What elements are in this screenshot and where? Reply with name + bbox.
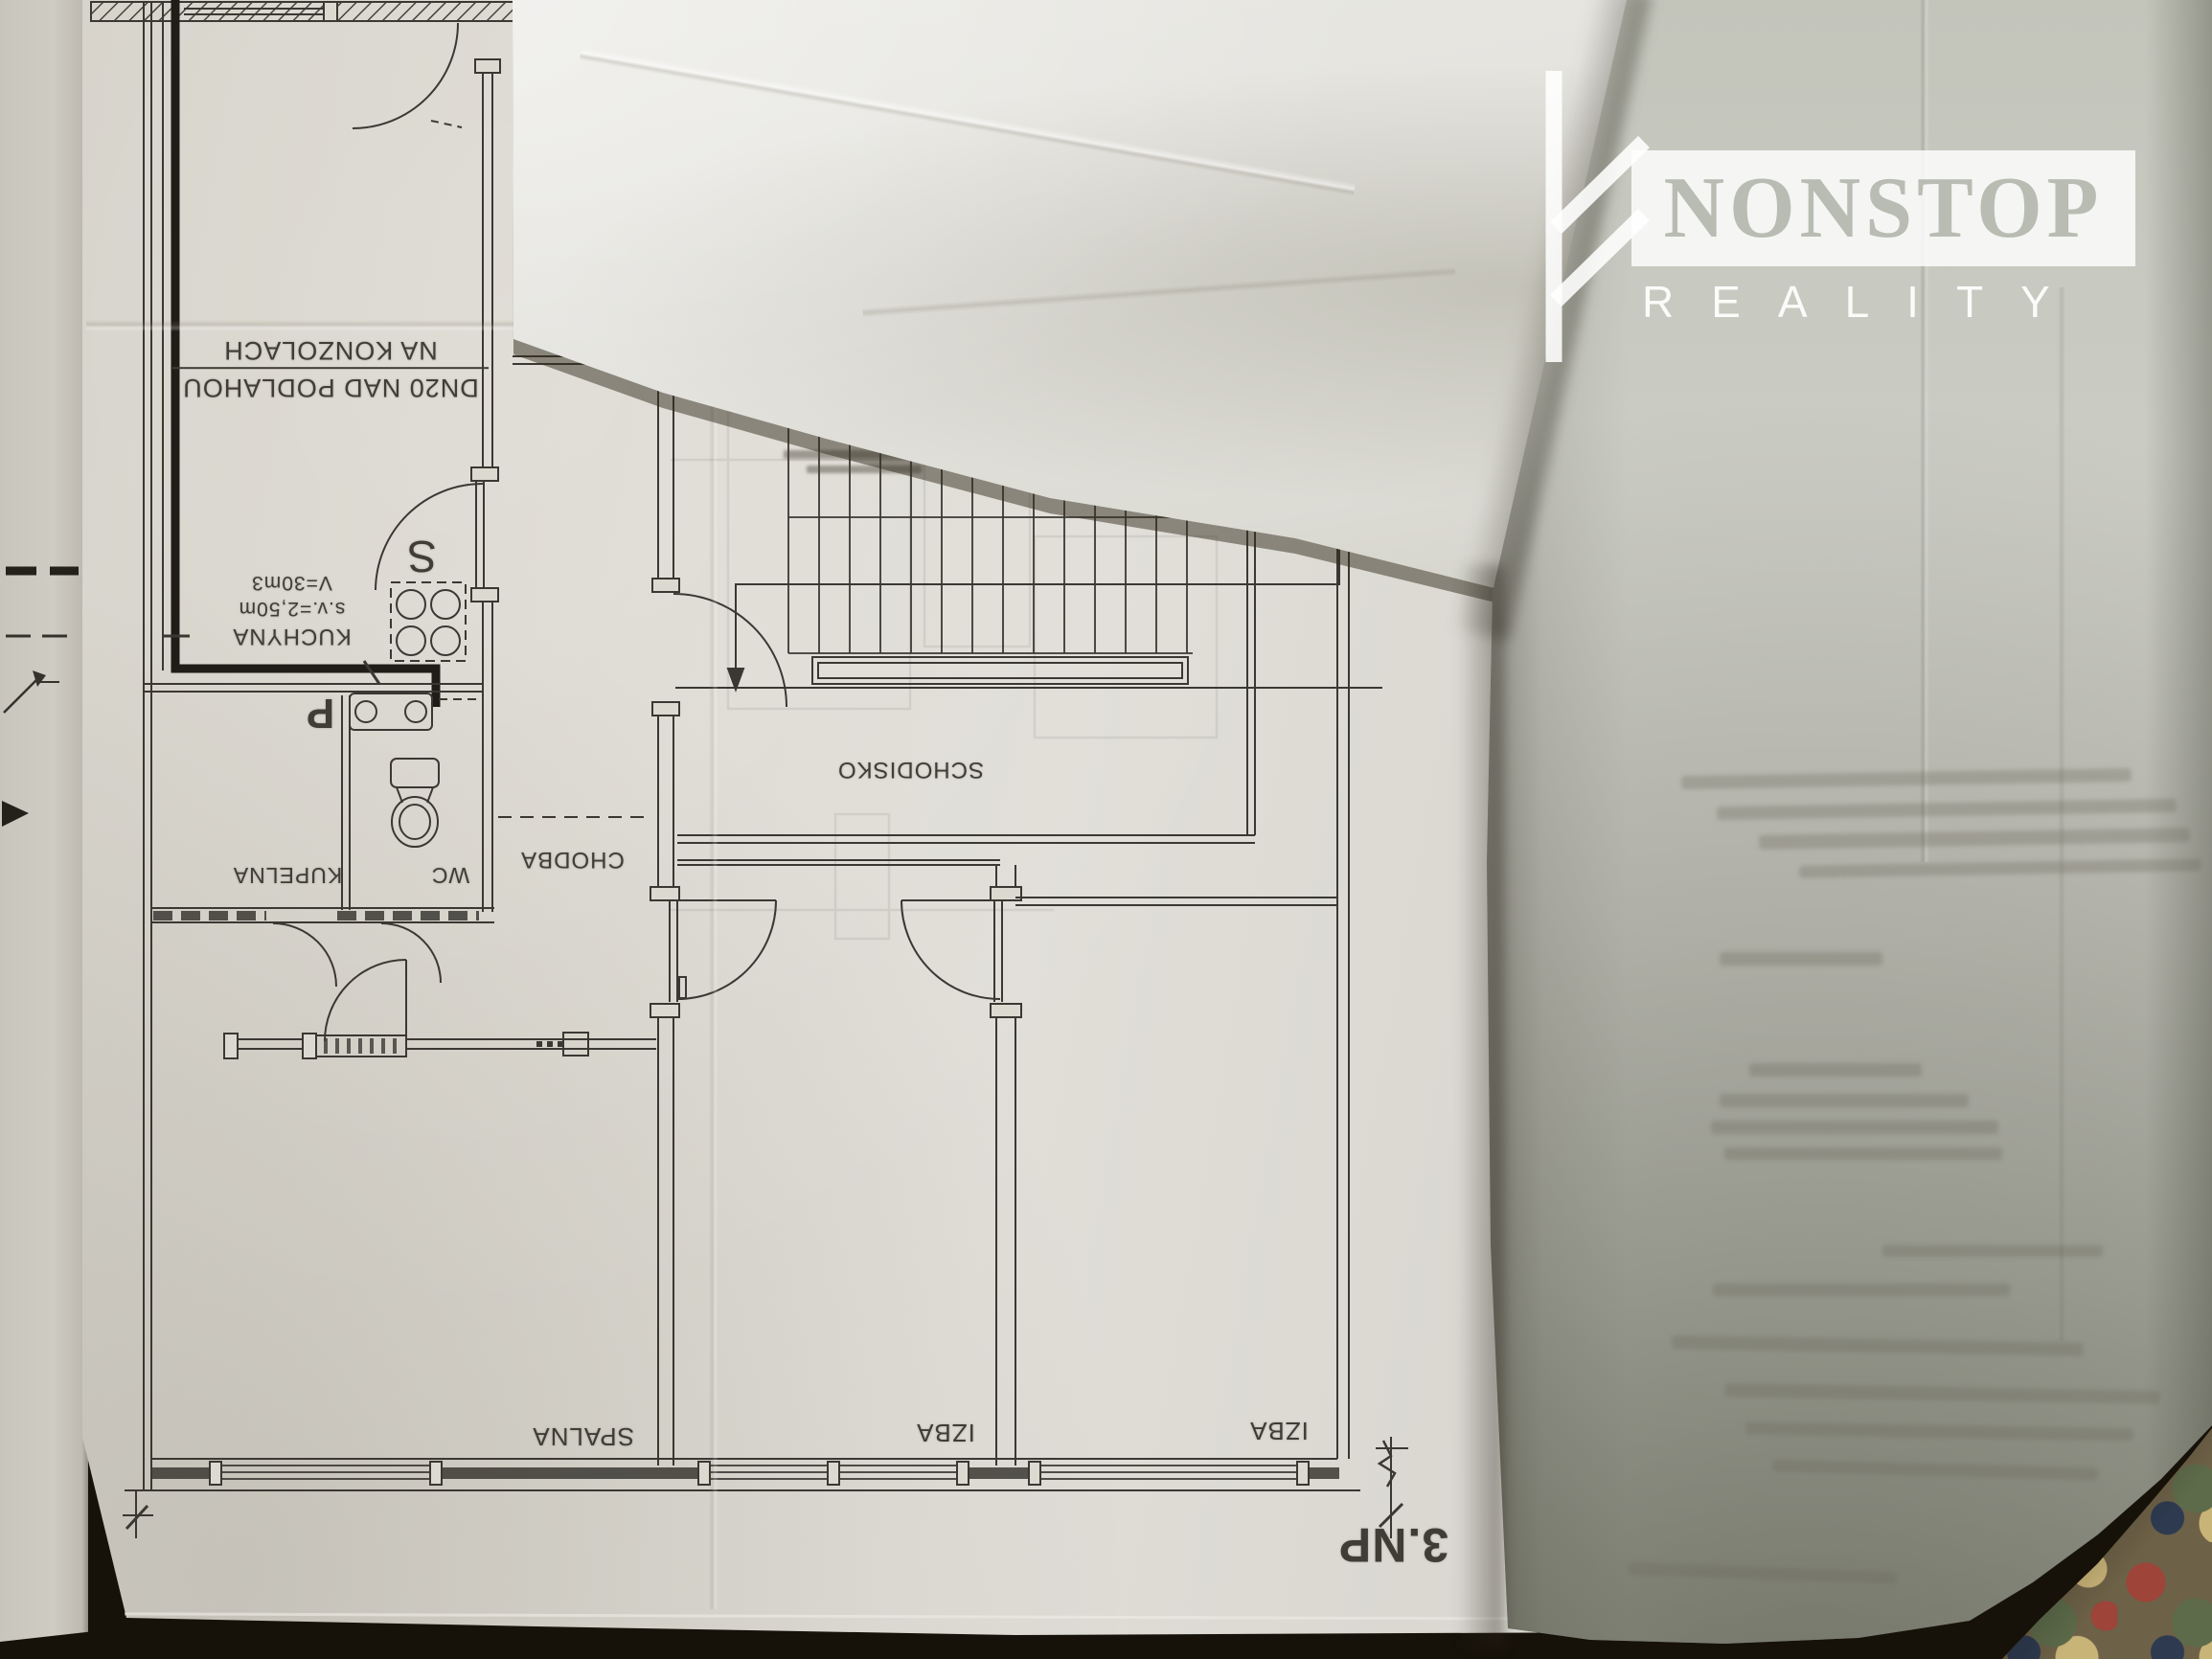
page-fold-shadow bbox=[1458, 565, 1504, 1648]
page-crease bbox=[1920, 0, 1929, 862]
ghost-text-line bbox=[1724, 1148, 2002, 1160]
ghost-text-line bbox=[1745, 1421, 2133, 1441]
ghost-text-line bbox=[1629, 1562, 1897, 1584]
ghost-text-line bbox=[1749, 1063, 1922, 1077]
room-label-wc: WC bbox=[422, 860, 479, 889]
pipe-annotation-line2: NA KONZOLACH bbox=[172, 333, 489, 367]
brand-name: NONSTOP bbox=[1664, 158, 2104, 259]
ghost-text-line bbox=[1759, 828, 2190, 850]
room-label-hall: CHODBA bbox=[517, 845, 627, 875]
ghost-text-line bbox=[1772, 1460, 2098, 1481]
page-crease bbox=[2058, 287, 2065, 1341]
ghost-text-line bbox=[1713, 1284, 2010, 1296]
ghost-text-line bbox=[1672, 1335, 2084, 1356]
room-label-bathroom: KUPELNA bbox=[230, 860, 345, 889]
room-label-bedroom: SPALNA bbox=[538, 1420, 634, 1452]
ghost-text-line bbox=[1711, 1121, 1998, 1134]
left-page-edge bbox=[0, 0, 88, 1642]
sink-label: P bbox=[299, 686, 341, 740]
ghost-text-line bbox=[1717, 799, 2177, 820]
sheet-crease bbox=[862, 266, 1455, 317]
ghost-text-line bbox=[1882, 1245, 2103, 1257]
photo-of-floor-plan: DN20 NAD PODLAHOU NA KONZOLACH KUCHYNA s… bbox=[0, 0, 2212, 1659]
kitchen-name: KUCHYNA bbox=[213, 622, 371, 651]
stove-label: S bbox=[398, 527, 445, 584]
ghost-text-line bbox=[1720, 1094, 1969, 1107]
room-label-room-mid: IZBA bbox=[912, 1416, 979, 1448]
room-label-staircase: SCHODISKO bbox=[845, 755, 984, 784]
pipe-annotation: DN20 NAD PODLAHOU NA KONZOLACH bbox=[172, 333, 489, 404]
room-label-room-right: IZBA bbox=[1245, 1414, 1312, 1446]
left-page-marks bbox=[0, 0, 88, 1642]
ghost-text-line bbox=[1799, 858, 2201, 877]
brand-watermark-box: NONSTOP bbox=[1631, 150, 2135, 266]
brand-subtitle: REALITY bbox=[1642, 276, 2140, 328]
kitchen-ceiling-height: s.v.=2,50m bbox=[213, 595, 371, 621]
ghost-text-line bbox=[1720, 952, 1882, 966]
ghost-text-line bbox=[1724, 1383, 2160, 1404]
sheet-crease bbox=[580, 47, 1356, 196]
kitchen-volume: V=30m3 bbox=[213, 569, 371, 595]
pipe-annotation-line1: DN20 NAD PODLAHOU bbox=[172, 367, 489, 404]
room-label-kitchen: KUCHYNA s.v.=2,50m V=30m3 bbox=[213, 569, 371, 651]
floor-level-label: 3.NP bbox=[1334, 1513, 1453, 1576]
